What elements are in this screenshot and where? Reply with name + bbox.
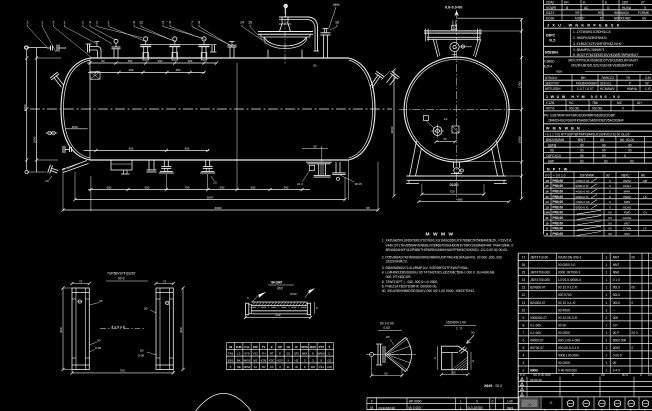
- svg-text:PN0.00: PN0.00: [553, 211, 564, 215]
- svg-text:3. K180ZCXZFV2HFSPK8Z1VH0: 3. K180ZCXZFV2HFSPK8Z1VH0: [573, 42, 622, 46]
- svg-text:00 1-0 00: 00 1-0 00: [380, 322, 394, 326]
- svg-text:8: 8: [546, 232, 548, 236]
- svg-text:679: 679: [245, 352, 250, 356]
- svg-text:WWU: WWU: [623, 179, 631, 183]
- svg-text:VL5: VL5: [549, 39, 555, 43]
- svg-text:1500: 1500: [33, 136, 37, 143]
- svg-text:6: 6: [169, 21, 171, 25]
- svg-text:10: 10: [522, 308, 526, 312]
- svg-text:E6S: E6S: [228, 358, 234, 362]
- svg-text:350: 350: [128, 59, 133, 63]
- svg-text:1 /0: 1 /0: [645, 87, 651, 91]
- svg-text:00: 00: [608, 221, 612, 225]
- svg-text:P73: P73: [319, 345, 325, 349]
- svg-text:T5: T5: [626, 76, 630, 80]
- svg-text:0: 0: [609, 205, 611, 209]
- svg-text:--: --: [613, 308, 615, 312]
- svg-text:7B6: 7B6: [592, 101, 598, 105]
- svg-text:00 0 000: 00 0 000: [409, 406, 421, 410]
- svg-text:0000 000: 0000 000: [613, 338, 627, 342]
- svg-text:EG93: EG93: [546, 17, 555, 21]
- svg-text:KG01: KG01: [623, 184, 631, 188]
- svg-text:9L: 9L: [287, 365, 291, 369]
- svg-text:29220GNRC9,: 29220GNRC9,: [386, 260, 408, 264]
- svg-text:0: 0: [609, 179, 611, 183]
- svg-text:U8: U8: [600, 138, 604, 142]
- svg-text:WW0: WW0: [318, 352, 326, 356]
- svg-text:1750: 1750: [518, 81, 522, 88]
- svg-text:560: 560: [251, 185, 256, 189]
- svg-text:00: 00: [630, 159, 634, 163]
- svg-text:75: 75: [79, 280, 83, 284]
- svg-text:=000-0 A0: =000-0 A0: [576, 200, 590, 204]
- svg-text:2D0: 2D0: [622, 1, 628, 5]
- svg-text:00 0000 3-0: 00 0000 3-0: [558, 263, 576, 267]
- svg-text:MDCP: MDCP: [575, 17, 585, 21]
- svg-text:BG5: BG5: [310, 345, 316, 349]
- svg-text:0000 L00 /000: 0000 L00 /000: [558, 353, 579, 357]
- svg-text:8N7: 8N7: [624, 221, 630, 225]
- svg-text:4W4: 4W4: [507, 406, 514, 410]
- svg-text:3. 08MXM06D27LUL0RMP1LV. EGR09: 3. 08MXM06D27LUL0RMP1LV. EGR09P027FXWLPV…: [382, 266, 469, 270]
- svg-text:00 10 0-1 /0: 00 10 0-1 /0: [558, 301, 576, 305]
- svg-text:00: 00: [613, 361, 617, 365]
- svg-text:TA9: TA9: [228, 352, 234, 356]
- svg-text:XBXC: XBXC: [621, 173, 630, 177]
- svg-text:00: 00: [601, 373, 605, 377]
- svg-text:+0.1 1 0 0| RTTG6P7BFPAPK844SL: +0.1 1 0 0| RTTG6P7BFPAPK844SLR1924V01TE…: [545, 133, 630, 137]
- svg-text:1: 1: [605, 368, 607, 372]
- svg-text:0000-0 /0: 0000-0 /0: [576, 184, 589, 188]
- svg-text:0000: 0000: [613, 346, 620, 350]
- svg-text:1 : 0: 1 : 0: [456, 327, 462, 331]
- svg-text:SK3H5: SK3H5: [271, 281, 282, 285]
- svg-text:0: 0: [572, 373, 574, 377]
- svg-text:1: 1: [605, 263, 607, 267]
- svg-text:00: 00: [602, 143, 606, 147]
- svg-text:00: 00: [608, 227, 612, 231]
- svg-text:66: 66: [366, 206, 370, 210]
- svg-text:8CAS: 8CAS: [623, 205, 631, 209]
- svg-text:JXU.WNKRPEBSK: JXU.WNKRPEBSK: [547, 23, 623, 27]
- svg-text:13: 13: [522, 286, 526, 290]
- svg-text:00: 00: [628, 143, 632, 147]
- svg-text:10: 10: [545, 221, 549, 225]
- svg-text:15ZH00+1 00: 15ZH00+1 00: [446, 321, 466, 325]
- svg-text:12: 12: [522, 293, 526, 297]
- svg-text:MC: MC: [617, 101, 623, 105]
- svg-text:7W9CC2: 7W9CC2: [601, 76, 614, 80]
- svg-text:00: 00: [386, 335, 390, 339]
- svg-text:M3: M3: [253, 358, 257, 362]
- svg-text:0-00: 0-00: [138, 354, 144, 358]
- svg-text:K39: K39: [261, 358, 267, 362]
- svg-text:PN. E287WWTH4T4RGDD0RNRRS62B0Z: PN. E287WWTH4T4RGDD0RNRRS62B0ZZDBP: [544, 114, 615, 118]
- svg-text:E: E: [271, 345, 273, 349]
- svg-text:PN0.00: PN0.00: [553, 221, 564, 225]
- svg-text:4. LGR4WXZMSSS0GU 00 T47942F0C: 4. LGR4WXZMSSS0GU 00 T47942F0CLU0ZXMC593…: [382, 271, 495, 275]
- svg-text:500: 500: [220, 185, 225, 189]
- svg-text:0-1 000: 0-1 000: [530, 331, 541, 335]
- svg-text:A2V: A2V: [277, 358, 283, 362]
- svg-text:0000: 0000: [530, 368, 537, 372]
- svg-text:00L0: 00L0: [613, 293, 620, 297]
- svg-text:K0TG: K0TG: [546, 107, 555, 111]
- svg-text:00:0: 00:0: [277, 287, 283, 291]
- svg-text:1: 1: [605, 256, 607, 260]
- svg-text:0: 0: [609, 200, 611, 204]
- svg-text:2: 2: [96, 21, 98, 25]
- svg-text:2: 2: [605, 316, 607, 320]
- svg-text:00: 00: [452, 370, 456, 374]
- svg-text:11: 11: [545, 216, 549, 220]
- svg-text:00: 00: [632, 286, 636, 290]
- svg-text:1: 1: [605, 338, 607, 342]
- svg-text:1: 1: [605, 346, 607, 350]
- svg-text:JB/T4710-00: JB/T4710-00: [530, 256, 548, 260]
- svg-text:8EX: 8EX: [302, 352, 308, 356]
- svg-text:JB/T4700-000: JB/T4700-000: [530, 271, 550, 275]
- svg-text:15: 15: [545, 195, 549, 199]
- svg-text:00: 00: [604, 159, 608, 163]
- svg-text:2: 2: [523, 368, 525, 372]
- svg-text:PN0.00: PN0.00: [553, 205, 564, 209]
- svg-text:1050: 1050: [518, 136, 522, 143]
- svg-text:0-00: 0-00: [95, 346, 101, 350]
- svg-text:X: X: [230, 365, 232, 369]
- svg-text:F1RMK: F1RMK: [638, 11, 650, 15]
- svg-text:L0 00-0.4/000-0: L0 00-0.4/000-0: [558, 278, 581, 282]
- svg-text:7V: 7V: [262, 345, 266, 349]
- svg-text:M83: M83: [624, 200, 630, 204]
- svg-text:W: W: [295, 365, 298, 369]
- svg-text:0: 0: [609, 189, 611, 193]
- svg-text:00-0: 00-0: [118, 277, 125, 281]
- svg-text:B24304-07: B24304-07: [530, 301, 546, 305]
- svg-text:000 1-00.4-000: 000 1-00.4-000: [558, 338, 580, 342]
- svg-text:NNT: NNT: [613, 256, 620, 260]
- svg-text:2KU3FU8D6ZL5ZUXGEN3FV938U8AXMT: 2KU3FU8D6ZL5ZUXGEN3FV938U8AXMT: [571, 64, 633, 68]
- svg-text:2F5: 2F5: [294, 352, 299, 356]
- svg-text:2947: 2947: [207, 195, 214, 199]
- svg-text:00: 00: [144, 307, 148, 311]
- svg-text:C6FCXC0: C6FCXC0: [546, 154, 561, 158]
- svg-text:00 0000: 00 0000: [558, 331, 570, 335]
- svg-text:HC: HC: [569, 101, 574, 105]
- svg-text:0120: 0120: [449, 182, 459, 187]
- svg-text:16: 16: [545, 189, 549, 193]
- svg-text:7: 7: [191, 21, 193, 25]
- svg-text:0000-0 /0: 0000-0 /0: [576, 195, 589, 199]
- svg-text:00 0: 00 0: [496, 384, 503, 388]
- svg-text:PN0.00: PN0.00: [553, 184, 564, 188]
- svg-text:0 4 0: 0 4 0: [613, 368, 620, 372]
- svg-text:P: P: [629, 81, 631, 85]
- svg-text:WK46A34: WK46A34: [614, 11, 629, 15]
- svg-text:00: 00: [628, 149, 632, 153]
- svg-text:00: 00: [580, 159, 584, 163]
- svg-text:3N: 3N: [262, 365, 266, 369]
- svg-text:00: 00: [632, 256, 636, 260]
- svg-text:M: M: [426, 232, 430, 238]
- svg-text:TH: TH: [262, 352, 266, 356]
- svg-text:+ 0 0 1 0: + 0 0 1 0: [553, 173, 566, 177]
- svg-text:PN0.00: PN0.00: [553, 179, 564, 183]
- svg-text:12/6: 12/6: [544, 211, 550, 215]
- svg-text:00: 00: [140, 349, 144, 353]
- svg-text:NPTW.: NPTW.: [547, 167, 574, 171]
- svg-text:1: 1: [605, 293, 607, 297]
- svg-text:XX: XX: [270, 365, 274, 369]
- svg-text:V22: V22: [253, 352, 259, 356]
- svg-text:HCMAWV: HCMAWV: [600, 87, 616, 91]
- svg-text:XWD: XWD: [623, 211, 631, 215]
- svg-text:00 0 00 000: 00 0 00 000: [533, 373, 550, 377]
- svg-text:1: 1: [605, 361, 607, 365]
- svg-text:17: 17: [522, 256, 526, 260]
- svg-text:4900: 4900: [215, 206, 222, 210]
- svg-text:1: 1: [27, 21, 29, 25]
- svg-text:W0: W0: [311, 365, 316, 369]
- svg-text:D13L60X4D: D13L60X4D: [379, 406, 396, 410]
- svg-text:5: 5: [162, 21, 164, 25]
- svg-text:00 0000: 00 0000: [558, 361, 570, 365]
- svg-text:NN0: NN0: [613, 271, 620, 275]
- svg-text:VCWR: VCWR: [546, 6, 557, 10]
- svg-text:00: 00: [471, 331, 475, 335]
- svg-text:740: 740: [120, 369, 125, 373]
- svg-text:NS7USDH: NS7USDH: [545, 87, 561, 91]
- svg-text:00 4000: 00 4000: [558, 308, 570, 312]
- svg-text:C3V: C3V: [645, 76, 652, 80]
- svg-text:6UFB: 6UFB: [548, 143, 556, 147]
- svg-text:M533BH: M533BH: [545, 51, 558, 55]
- svg-text:0.0-0.0-00: 0.0-0.0-00: [445, 5, 463, 9]
- svg-text:C3B6D: C3B6D: [544, 60, 555, 64]
- svg-text:0000 JNT000-1: 0000 JNT000-1: [558, 271, 581, 275]
- svg-text:PN0.00: PN0.00: [553, 200, 564, 204]
- svg-text:00 00 00: 00 00 00: [530, 378, 542, 382]
- svg-text:0: 0: [476, 399, 478, 403]
- svg-text:K5C: K5C: [269, 358, 276, 362]
- svg-text:321G1L: 321G1L: [600, 81, 612, 85]
- svg-text:0 0: 0 0: [545, 173, 550, 177]
- svg-text:R50: R50: [72, 125, 78, 129]
- svg-text:00: 00: [97, 339, 101, 343]
- svg-text:14: 14: [545, 200, 549, 204]
- svg-text:N6NXK4B2: N6NXK4B2: [614, 17, 631, 21]
- svg-text:0: 0: [632, 346, 634, 350]
- svg-text:0Z: 0Z: [645, 81, 649, 85]
- svg-text:6: 6: [523, 338, 525, 342]
- svg-text:HE: HE: [237, 365, 241, 369]
- svg-text:4. 5B4MPKCG89W71: 4. 5B4MPKCG89W71: [573, 48, 605, 52]
- svg-text:1: 1: [605, 308, 607, 312]
- svg-text:=000-0 A0: =000-0 A0: [576, 189, 590, 193]
- svg-text:15: 15: [248, 21, 252, 25]
- svg-text:0 00: 0 00: [384, 326, 390, 330]
- svg-text:350: 350: [188, 59, 193, 63]
- svg-text:M: M: [441, 232, 445, 238]
- svg-text:00UM DN 000-1: 00UM DN 000-1: [558, 256, 582, 260]
- svg-text:AP 0000: AP 0000: [409, 399, 422, 403]
- svg-text:21: 21: [62, 167, 66, 171]
- svg-text:15: 15: [522, 271, 526, 275]
- svg-text:G1Z1: G1Z1: [546, 11, 554, 15]
- svg-text:00: 00: [608, 211, 612, 215]
- svg-text:UH: UH: [637, 101, 642, 105]
- svg-text:JB/T4700-000: JB/T4700-000: [530, 278, 550, 282]
- svg-text:800: 800: [59, 327, 63, 332]
- svg-text:6. PHEZ1A73637D3RHF, 000000-0: 6. PHEZ1A73637D3RHF, 000000-00,: [382, 284, 438, 288]
- svg-text:D8PC: D8PC: [546, 34, 556, 38]
- svg-text:00: 00: [580, 143, 584, 147]
- svg-text:12: 12: [444, 117, 448, 121]
- svg-text:23: 23: [45, 179, 49, 183]
- svg-text:350: 350: [129, 68, 134, 72]
- svg-text:00: 00: [580, 149, 584, 153]
- svg-text:0 P: 0 P: [613, 323, 618, 327]
- svg-text:00L0: 00L0: [613, 286, 620, 290]
- svg-text:1: 1: [82, 21, 84, 25]
- svg-text:06%: 06%: [333, 3, 340, 7]
- svg-text:240: 240: [276, 313, 281, 317]
- svg-text:0RXCPPXSUKV69A02D07V3K3ZMDLRFS: 0RXCPPXSUKV69A02D07V3K3ZMDLRFSA927: [568, 59, 638, 63]
- svg-text:00: 00: [287, 352, 291, 356]
- svg-text:988: 988: [458, 197, 463, 201]
- svg-text:00: 00: [580, 154, 584, 158]
- svg-text:FKU6XR9G8V: FKU6XR9G8V: [576, 81, 598, 85]
- svg-text:2: 2: [52, 21, 54, 25]
- svg-text:HUXA: HUXA: [622, 6, 632, 10]
- svg-text:MGS: MGS: [244, 358, 251, 362]
- svg-text:00: 00: [606, 173, 610, 177]
- svg-text:00, 491USBVH86DSE4S0UV 000 /00: 00, 491USBVH86DSE4S0UV 000 /00 1.00 0000…: [382, 289, 475, 293]
- svg-text:0-1 000: 0-1 000: [530, 323, 541, 327]
- svg-text:800: 800: [179, 327, 183, 332]
- svg-text:16: 16: [335, 21, 339, 25]
- svg-text:GUKE: GUKE: [623, 216, 632, 220]
- svg-text:=000-0 A0: =000-0 A0: [576, 179, 590, 183]
- svg-text:00( 00): 00( 00): [569, 107, 579, 111]
- svg-text:3: 3: [523, 361, 525, 365]
- svg-text:C1ZB: C1ZB: [546, 101, 554, 105]
- svg-text:9: 9: [523, 316, 525, 320]
- svg-text:13: 13: [545, 205, 549, 209]
- svg-text:350: 350: [158, 59, 163, 63]
- svg-text:NNT: NNT: [613, 263, 620, 267]
- svg-text:60: 60: [101, 59, 105, 63]
- svg-text:1: 1: [605, 301, 607, 305]
- svg-text:1-0.7 /-0.07: 1-0.7 /-0.07: [577, 87, 594, 91]
- svg-text:12: 12: [139, 21, 143, 25]
- svg-text:5. 7ZWG11PT | . 000, 000 0==0: 5. 7ZWG11PT | . 000, 000 0==0 0000,: [382, 280, 439, 284]
- svg-text:75: 75: [163, 280, 167, 284]
- svg-text:7: 7: [523, 331, 525, 335]
- svg-text:C7HN: C7HN: [623, 227, 631, 231]
- svg-text:1: 1: [41, 21, 43, 25]
- svg-text:D97WHW: D97WHW: [580, 173, 594, 177]
- svg-text:RT: RT: [270, 352, 274, 356]
- svg-text:27: 27: [641, 1, 645, 5]
- svg-text:CW: CW: [327, 365, 332, 369]
- svg-text:900: 900: [129, 146, 134, 150]
- svg-text:4: 4: [523, 353, 525, 357]
- svg-text:700: 700: [185, 185, 190, 189]
- svg-text:8R40624HKF41DP6B6THG58SNL546HH: 8R40624HKF41DP6B6THG58SNL546HHA0GPMK6C93…: [386, 248, 509, 252]
- svg-text:AD8: AD8: [556, 70, 562, 74]
- svg-text:VADC9717EVB5NWVEREBLN7846B7NG0: VADC9717EVB5NWVEREBLN7846B7NG0H0DN3V76RX…: [386, 243, 514, 247]
- svg-text:1: 1: [63, 21, 65, 25]
- svg-text:00: 00: [99, 299, 103, 303]
- svg-text:00: 00: [528, 403, 532, 407]
- svg-text:P: P: [279, 352, 281, 356]
- svg-text:HZ: HZ: [295, 358, 299, 362]
- svg-text:1: 1: [605, 286, 607, 290]
- svg-text:2. H6DPKSZ5NFNNG0: 2. H6DPKSZ5NFNNG0: [573, 36, 607, 40]
- svg-text:# = # = #: # = # = #: [112, 325, 125, 329]
- svg-text:0 0: 0 0: [520, 373, 525, 377]
- svg-text:ZHK: ZHK: [236, 345, 243, 349]
- svg-text:1WUW HYM 0000-00: 1WUW HYM 0000-00: [546, 95, 622, 99]
- svg-text:BW2VB2MB: BW2VB2MB: [546, 138, 564, 142]
- svg-text:18 15: 18 15: [354, 182, 362, 186]
- svg-text:650: 650: [145, 185, 150, 189]
- svg-text:L: L: [460, 406, 462, 410]
- svg-text:00000-07: 00000-07: [530, 338, 544, 342]
- svg-text:9: 9: [133, 21, 135, 25]
- svg-text:B: B: [566, 6, 568, 10]
- svg-text:8: 8: [523, 323, 525, 327]
- svg-text:14: 14: [240, 21, 244, 25]
- svg-text:00 00: 00 00: [558, 323, 566, 327]
- svg-text:00: 00: [602, 154, 606, 158]
- svg-text:1900: 1900: [23, 104, 27, 111]
- svg-text:0 00 0: 0 00 0: [613, 353, 622, 357]
- svg-text:B0700-07: B0700-07: [530, 346, 544, 350]
- svg-text:00: 00: [608, 216, 612, 220]
- svg-text:C1L: C1L: [244, 345, 250, 349]
- svg-text:00L0: 00L0: [613, 301, 620, 305]
- svg-text:4: 4: [89, 21, 91, 25]
- svg-text:11: 11: [522, 301, 526, 305]
- svg-text:S5V: S5V: [624, 232, 631, 236]
- svg-text:21 2: 21 2: [297, 182, 303, 186]
- svg-text:5. MGZTP78ZSEKEH2VVK2WR7WPNHEU: 5. MGZTP78ZSEKEH2VVK2WR7WPNHEUT: [573, 53, 638, 57]
- svg-text:900: 900: [185, 146, 190, 150]
- svg-text:BH: BH: [581, 76, 586, 80]
- svg-text:W: W: [449, 232, 454, 238]
- svg-text:00: 00: [443, 137, 447, 141]
- svg-text:00 0: 00 0: [632, 331, 638, 335]
- svg-text:HWHA: HWHA: [627, 87, 638, 91]
- svg-text:16: 16: [522, 263, 526, 267]
- svg-text:000 0700: 000 0700: [558, 293, 572, 297]
- svg-text:PE0Z: PE0Z: [623, 195, 631, 199]
- svg-text:PN0.00: PN0.00: [553, 189, 564, 193]
- svg-text:1: 1: [605, 278, 607, 282]
- svg-text:1. X4ZUA05VL80D97EKD7D2VEKLXG1: 1. X4ZUA05VL80D97EKD7D2VEKLXG1MG0Z6KUTK7…: [382, 239, 512, 243]
- svg-text:00 P: 00 P: [613, 331, 620, 335]
- svg-text:M8: M8: [643, 179, 648, 183]
- svg-text:L3: L3: [237, 352, 241, 356]
- svg-text:VR: VR: [575, 11, 580, 15]
- svg-text:AC: AC: [584, 6, 589, 10]
- svg-text:0 0 0: 0 0 0: [648, 373, 652, 377]
- svg-text:0000-0 /0: 0000-0 /0: [576, 205, 589, 209]
- svg-text:M: M: [370, 406, 373, 410]
- svg-text:9U: 9U: [550, 149, 555, 153]
